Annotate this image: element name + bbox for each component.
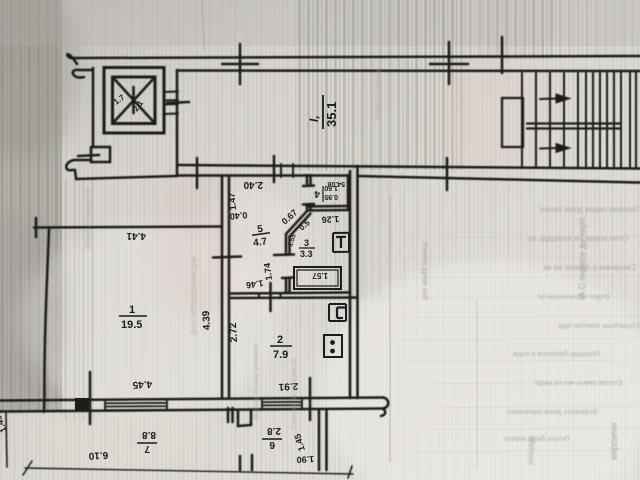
svg-text:Площадь балконов и лодж: Площадь балконов и лодж [512,350,600,358]
svg-text:1.26: 1.26 [321,214,339,225]
svg-text:дня звы短 привед: дня звы短 привед [420,242,429,300]
svg-text:4.45: 4.45 [132,378,152,390]
svg-text:6: 6 [269,439,275,450]
svg-text:Высота по внутреннему: Высота по внутреннему [253,342,260,420]
svg-text:1.90: 1.90 [296,454,314,465]
svg-text:8.8: 8.8 [142,429,156,440]
svg-text:2.8: 2.8 [267,425,281,436]
svg-text:Отметка острукции по: Отметка острукции по [291,358,298,430]
svg-text:Этажность дома кирпичного: Этажность дома кирпичного [506,409,598,416]
svg-text:Служебные отметки года: Служебные отметки года [558,322,640,330]
svg-text:общая площадь кв: общая площадь кв [84,188,92,250]
svg-text:кирпичн: кирпичн [609,423,620,460]
svg-text:1.47: 1.47 [227,192,238,210]
svg-text:35.1: 35.1 [324,102,339,127]
svg-text:3: 3 [304,238,309,248]
svg-text:С кладовая пло: С кладовая пло [19,339,26,390]
svg-text:4.41: 4.41 [126,230,146,241]
svg-text:номер по плану: номер по плану [375,68,382,120]
svg-text:4.39: 4.39 [201,310,213,330]
svg-text:Отдел технической пл: Отдел технической пл [538,293,610,301]
svg-text:7.9: 7.9 [273,349,288,361]
svg-text:3.3: 3.3 [300,249,313,259]
svg-text:I,: I, [307,115,321,122]
svg-text:2.72: 2.72 [228,322,240,342]
svg-text:54.08: 54.08 [327,180,345,187]
svg-text:Дата обследования дом: Дата обследования дом [190,256,198,335]
svg-text:6.10: 6.10 [88,449,108,461]
svg-text:1.74: 1.74 [262,262,274,281]
svg-text:4: 4 [314,188,320,199]
svg-text:площадь: площадь [528,435,535,465]
svg-text:0.40: 0.40 [229,210,247,221]
svg-text:1.57: 1.57 [312,271,328,280]
svg-text:Печать бюро инвент: Печать бюро инвент [503,435,570,443]
svg-text:1: 1 [129,304,135,316]
svg-text:Типовая серия дома панел: Типовая серия дома панел [539,205,640,214]
svg-text:Состав семьи чел на кварт: Состав семьи чел на кварт [534,380,622,387]
svg-text:2.40: 2.40 [243,179,263,190]
svg-text:хината площадь стен: хината площадь стен [5,181,14,260]
svg-text:Сведения о правах на кв: Сведения о правах на кв [544,263,636,272]
svg-text:IA С пнвесе дь кирп: IA С пнвесе дь кирп [577,218,587,300]
svg-text:0.95: 0.95 [324,193,338,200]
svg-text:19.5: 19.5 [121,319,142,331]
svg-text:2: 2 [277,334,283,346]
svg-text:7: 7 [144,443,150,454]
svg-text:4.7: 4.7 [253,236,269,249]
